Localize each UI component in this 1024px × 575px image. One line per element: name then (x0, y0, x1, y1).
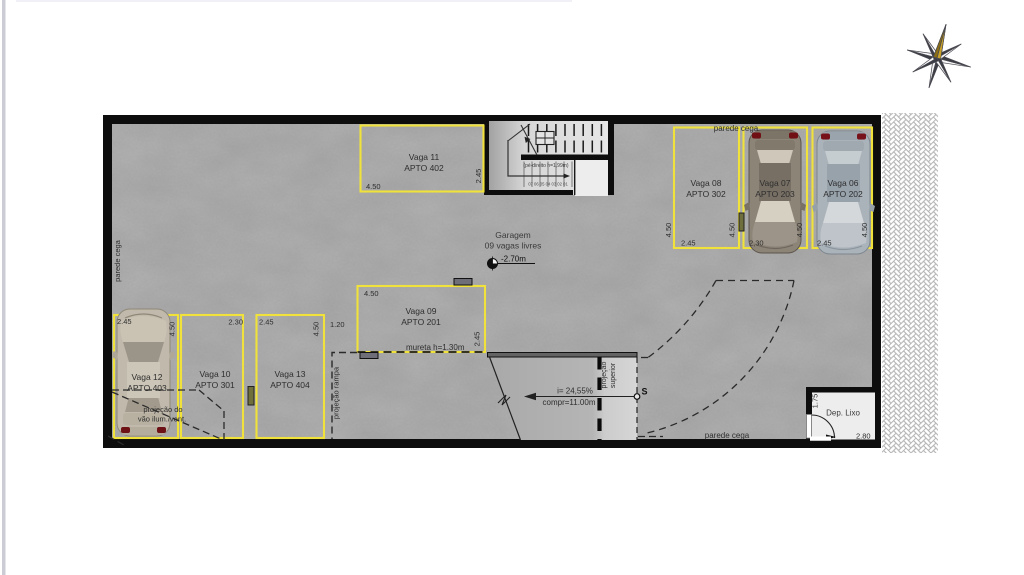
svg-text:2.80: 2.80 (856, 432, 871, 441)
svg-text:2.45: 2.45 (473, 332, 482, 347)
svg-text:2,30: 2,30 (749, 239, 764, 248)
svg-text:Vaga 13: Vaga 13 (274, 369, 305, 379)
svg-text:2.45: 2.45 (474, 169, 483, 184)
svg-text:-2.70m: -2.70m (501, 255, 526, 264)
svg-text:07 06 05 04 03 02 01: 07 06 05 04 03 02 01 (528, 182, 568, 187)
svg-text:4.50: 4.50 (664, 223, 673, 238)
svg-text:mureta h=1.30m: mureta h=1.30m (406, 343, 465, 352)
svg-text:4.50: 4.50 (860, 223, 869, 238)
svg-text:Vaga 08: Vaga 08 (690, 178, 721, 188)
svg-text:Vaga 10: Vaga 10 (199, 369, 230, 379)
svg-text:APTO 301: APTO 301 (195, 380, 235, 390)
svg-text:superior: superior (610, 362, 617, 388)
svg-text:2.45: 2.45 (259, 318, 274, 327)
svg-text:2.45: 2.45 (681, 239, 696, 248)
svg-text:2.30: 2.30 (228, 318, 243, 327)
svg-text:Vaga 12: Vaga 12 (131, 372, 162, 382)
svg-text:projeção: projeção (601, 361, 608, 388)
svg-text:Vaga 07: Vaga 07 (759, 178, 790, 188)
svg-text:parede cega: parede cega (113, 239, 122, 282)
svg-text:projeção do: projeção do (143, 405, 182, 414)
svg-text:2.45: 2.45 (817, 239, 832, 248)
svg-text:S: S (642, 387, 648, 397)
svg-text:Vaga 06: Vaga 06 (827, 178, 858, 188)
svg-text:APTO 203: APTO 203 (755, 189, 795, 199)
svg-text:4.50: 4.50 (364, 289, 379, 298)
svg-text:APTO 201: APTO 201 (401, 317, 441, 327)
svg-text:Vaga 11: Vaga 11 (409, 152, 440, 162)
svg-text:parede cega: parede cega (705, 431, 750, 440)
svg-text:i= 24,55%: i= 24,55% (557, 387, 593, 396)
svg-text:APTO 403: APTO 403 (127, 383, 167, 393)
svg-text:APTO 404: APTO 404 (270, 380, 310, 390)
svg-text:2.45: 2.45 (117, 317, 132, 326)
svg-text:projeção rampa: projeção rampa (332, 366, 341, 419)
svg-text:4.50: 4.50 (795, 223, 804, 238)
svg-text:4.50: 4.50 (728, 223, 737, 238)
svg-text:vão ilum./vent.: vão ilum./vent. (138, 415, 186, 424)
svg-text:4.50: 4.50 (312, 322, 321, 337)
svg-text:Dep. Lixo: Dep. Lixo (826, 409, 860, 418)
svg-text:APTO 402: APTO 402 (404, 163, 444, 173)
svg-text:Garagem: Garagem (495, 230, 530, 240)
svg-text:1.75: 1.75 (811, 394, 820, 409)
svg-text:4.50: 4.50 (366, 182, 381, 191)
svg-text:APTO 302: APTO 302 (686, 189, 726, 199)
svg-text:1.20: 1.20 (330, 320, 345, 329)
svg-text:parede cega: parede cega (714, 124, 759, 133)
svg-text:09 vagas livres: 09 vagas livres (485, 241, 542, 251)
svg-text:compr=11.00m: compr=11.00m (543, 398, 596, 407)
svg-text:APTO 202: APTO 202 (823, 189, 863, 199)
svg-text:(pé-direito h=1,99m): (pé-direito h=1,99m) (523, 163, 568, 169)
svg-text:4.50: 4.50 (168, 322, 177, 337)
svg-text:Vaga 09: Vaga 09 (405, 306, 436, 316)
